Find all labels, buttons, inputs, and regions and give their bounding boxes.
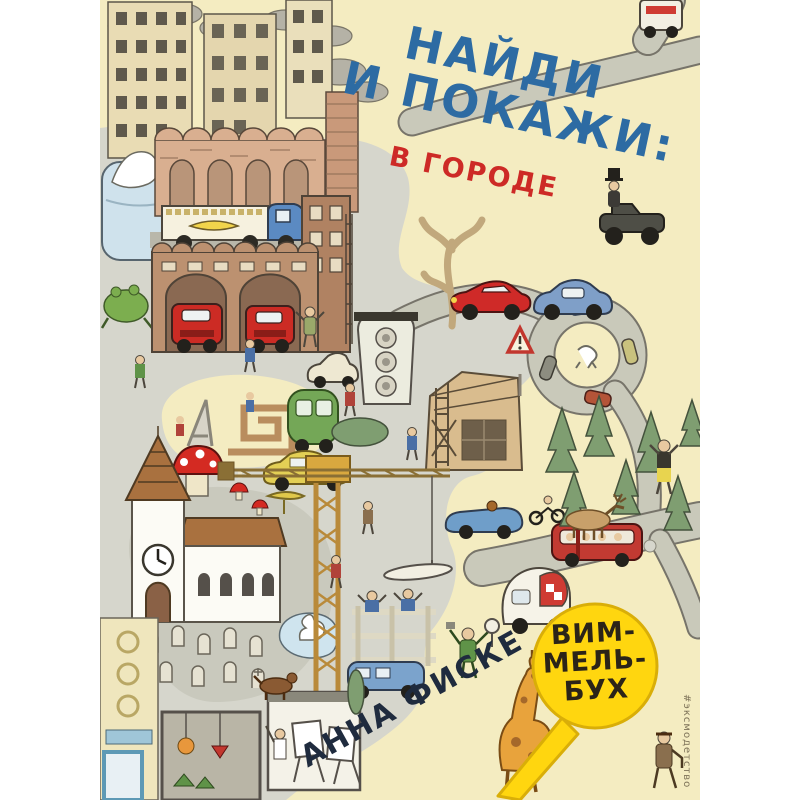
series-badge: ВИМ- МЕЛЬ- БУХ [523,616,667,708]
bush [332,418,388,446]
round-window-building [354,312,418,404]
dog-driver [487,501,497,511]
apartment-building-3 [286,0,332,118]
exhaust-puff [644,540,656,552]
screenshot: НАЙДИ И ПОКАЖИ: В ГОРОДЕ АННА ФИСКЕ ВИМ-… [0,0,800,800]
church-door [146,583,170,622]
publisher-hashtag: #эксмодетство [681,694,692,788]
lamp-shop [162,712,260,800]
swan-pond [280,613,338,658]
green-van [288,390,338,453]
book-cover[interactable]: НАЙДИ И ПОКАЖИ: В ГОРОДЕ АННА ФИСКЕ ВИМ-… [100,0,700,800]
decor-wall [100,618,158,800]
brick-chimney [326,92,358,212]
brick-arcade [155,128,325,216]
